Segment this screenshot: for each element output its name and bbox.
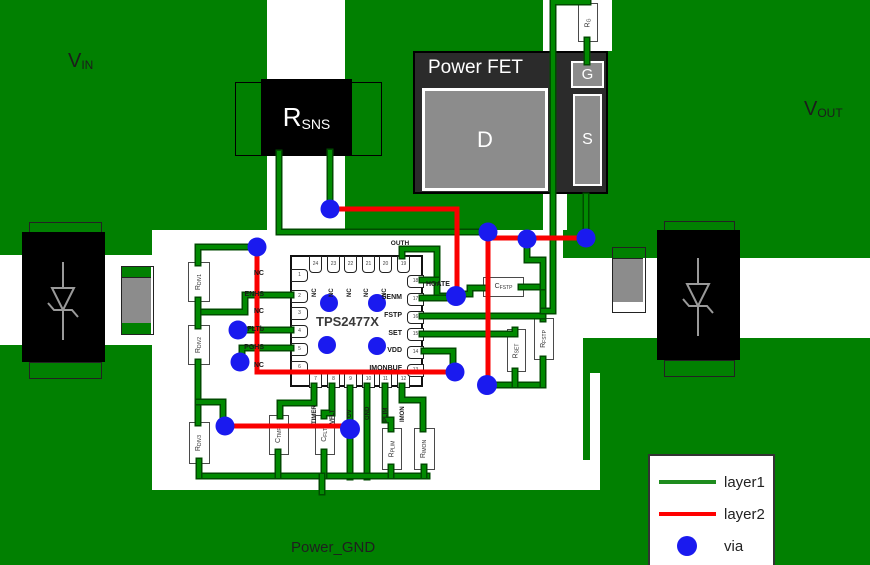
rimon-label: RIMON [421,440,429,458]
rdiv1-label: RDIV1 [195,274,203,290]
connector-pad-left [121,266,154,335]
cflt-label: CFLT [321,428,329,442]
resistor-rdiv3: RDIV3 [189,422,210,464]
power-fet-title: Power FET [428,57,523,79]
layer1-line-swatch [659,479,716,485]
resistor-rdiv1: RDIV1 [188,262,210,302]
pin12-label: IMON [400,406,406,422]
fet-gate-pad: G [571,61,604,88]
pin11-label: PLIM [383,408,389,422]
outh-net-label: OUTH [384,241,416,248]
tvs-left-pad-bottom [29,362,102,379]
pin15-label: SET [338,330,402,337]
vout-plane-bar [583,338,590,460]
resistor-rfstp: RFSTP [534,318,554,360]
connector-pad-right-metal [613,258,643,304]
rsns-pad-right [352,83,379,153]
via-dot-swatch [676,535,698,557]
pcb-layout-diagram: RSNS Power FET D G S RG RDIV1 RDIV2 RDIV… [0,0,870,565]
vout-plane-step-b [600,373,645,490]
vin-label: VIN [68,50,93,73]
cfstp-label: CFSTP [495,283,513,291]
fet-source-pad: S [573,94,602,186]
rdiv3-label: RDIV3 [196,435,204,451]
connector-pad-right [612,247,646,313]
pin5-label: PGHS [212,344,264,351]
ctmr-label: CTMR [275,427,283,443]
fet-source-label: S [582,131,593,149]
rsns-label: RSNS [283,102,331,133]
resistor-rg: RG [578,3,598,42]
connector-pad-right-top [613,248,643,258]
pin-10: 10 [362,371,375,388]
pin-9: 9 [344,371,357,388]
layer2-line-swatch [659,511,716,517]
pin10-label: GND [365,407,371,420]
hgate-net-label: HGATE [426,281,450,288]
legend-row-layer2: layer2 [650,498,773,530]
pin-2: 2 [291,290,308,303]
legend-label-layer2: layer2 [724,506,765,523]
capacitor-ctmr: CTMR [269,415,289,455]
resistor-rimon: RIMON [414,428,435,470]
tvs-diode-right-body [657,230,740,360]
pin9-label: OV [347,409,353,418]
fet-gate-label: G [582,66,594,83]
connector-pad-left-metal [122,277,151,324]
pin-4: 4 [291,325,308,338]
pin-18: 18 [407,275,424,288]
pin-7: 7 [309,371,322,388]
pin-20: 20 [379,256,392,273]
pin8-label: VFLT [330,409,336,424]
pin-15: 15 [407,328,424,341]
rsns-body: RSNS [261,79,352,156]
resistor-rplim: RPLIM [382,428,402,470]
pin23-label: NC [329,288,335,297]
power-fet-body: Power FET D G S [413,51,608,194]
pin24-label: NC [312,288,318,297]
pin-14: 14 [407,346,424,359]
legend-row-via: via [650,530,773,562]
tvs-right-pad-bottom [664,360,735,377]
pin-22: 22 [344,256,357,273]
vout-plane-step-a [583,338,645,373]
pin-6: 6 [291,361,308,374]
pin22-label: NC [347,288,353,297]
pin16-label: FSTP [338,312,402,319]
pin-5: 5 [291,343,308,356]
tvs-diode-left-body [22,232,105,362]
resistor-rdiv2: RDIV2 [188,325,210,365]
pin-13: 13 [407,364,424,377]
legend-label-via: via [724,538,743,555]
pin-17: 17 [407,293,424,306]
rset-label: RSET [512,343,520,358]
pin14-label: VDD [338,347,402,354]
pin21-label: NC [364,288,370,297]
resistor-rset: RSET [507,329,526,372]
legend-row-layer1: layer1 [650,466,773,498]
rdiv2-label: RDIV2 [195,337,203,353]
pin-8: 8 [327,371,340,388]
pin7-label: TIMER [312,405,318,424]
connector-pad-left-top [122,267,151,277]
pin-16: 16 [407,311,424,324]
fet-drain-pad: D [422,88,548,191]
pin6-label: NC [212,362,264,369]
pin1-label: NC [212,270,264,277]
connector-pad-left-bottom [122,323,151,334]
pin-23: 23 [327,256,340,273]
legend-label-layer1: layer1 [724,474,765,491]
connector-pad-right-bottom [613,302,643,312]
pin-24: 24 [309,256,322,273]
vout-label: VOUT [804,98,843,121]
pin-19: 19 [397,256,410,273]
fet-drain-label: D [477,127,493,153]
power-gnd-label: Power_GND [291,539,375,556]
pin-21: 21 [362,256,375,273]
legend: layer1 layer2 via [648,454,775,565]
rg-label: RG [584,18,592,27]
rsns-pad-left [236,83,261,153]
pin-1: 1 [291,269,308,282]
pin3-label: NC [212,308,264,315]
rplim-label: RPLIM [388,441,396,458]
capacitor-cfstp: CFSTP [483,277,524,297]
pin-11: 11 [379,371,392,388]
pin-3: 3 [291,307,308,320]
pin13-label: IMONBUF [338,365,402,372]
pin2-label: ENHS [212,291,264,298]
pin4-label: FLTb [212,326,264,333]
pin20-label: NC [382,288,388,297]
rfstp-label: RFSTP [540,330,548,348]
